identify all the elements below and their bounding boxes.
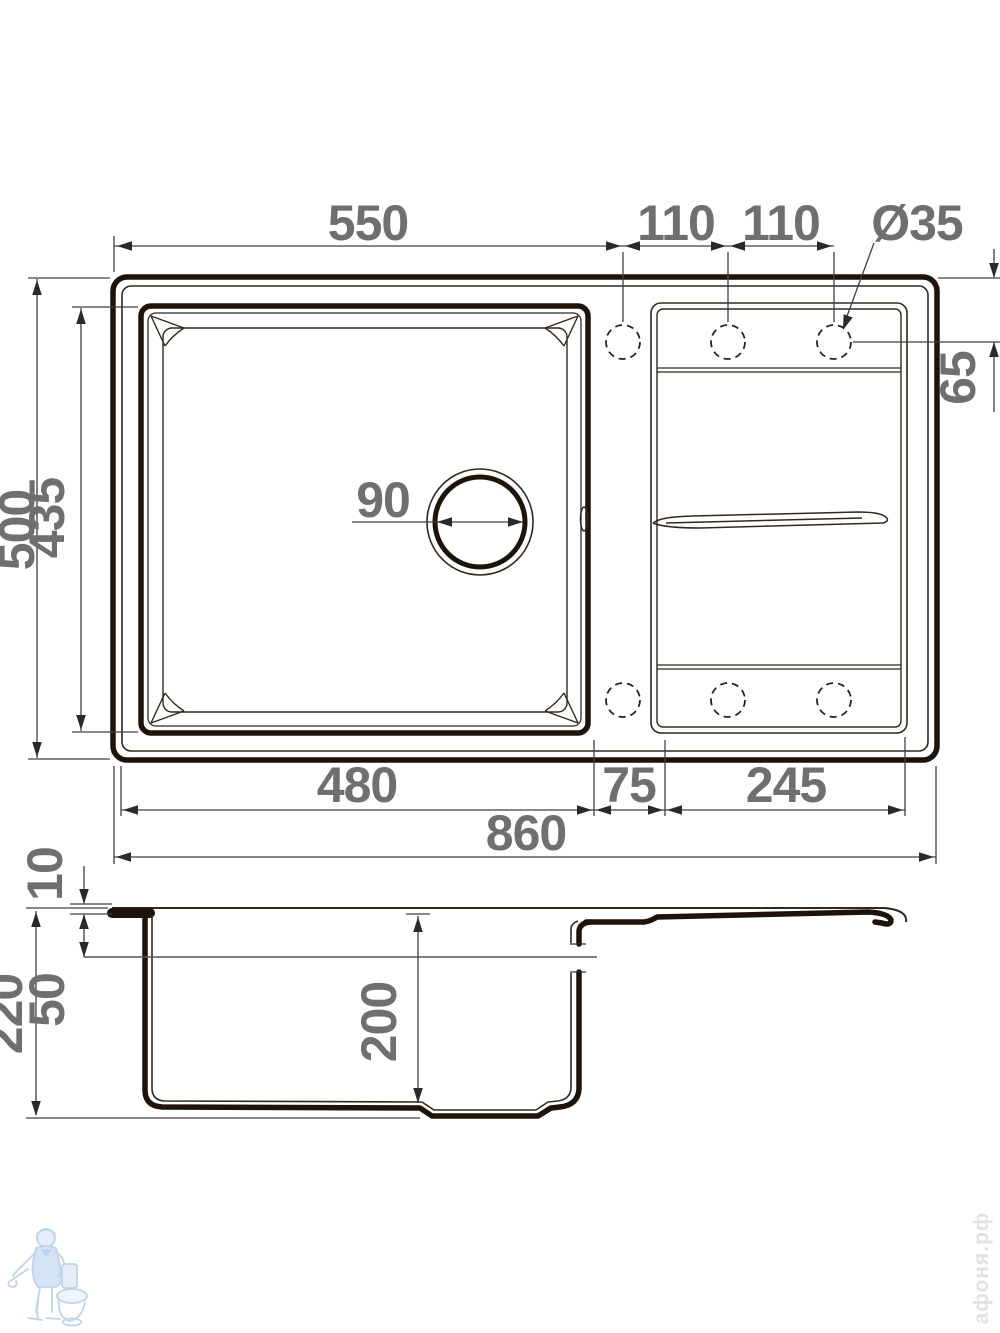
logo-legs [36,1287,52,1318]
dim-hole-diameter: Ø35 [871,195,963,251]
dimension-arrowhead [577,805,592,815]
dimension-arrowhead [919,852,934,862]
faucet-hole [606,683,640,717]
dimension-arrowhead [79,942,89,957]
dimension-arrowhead [888,805,903,815]
dim-bowl-depth: 435 [19,478,75,559]
dimension-arrowhead [413,917,423,932]
faucet-hole [606,325,640,359]
dim-board-width: 245 [746,757,827,813]
faucet-hole [711,325,745,359]
dimension-arrowhead [32,742,42,757]
dimension-arrowhead [730,241,745,251]
dimension-arrowhead [79,914,89,929]
sink-technical-drawing: 550 110 110 Ø35 65 500 435 90 480 75 245… [0,0,1000,1333]
dimension-arrowhead [989,342,999,357]
drain-recess-profile [422,1102,548,1110]
dimension-arrowhead [123,805,138,815]
logo-plunger [9,1269,29,1287]
dim-drain-diameter: 90 [356,472,410,528]
dimension-arrowhead [989,263,999,278]
faucet-hole [711,683,745,717]
dimension-arrowhead [838,314,852,331]
overflow-section-marks [570,944,586,972]
dimension-arrowhead [32,280,42,295]
dimension-arrowhead [117,241,132,251]
dimension-arrowhead [667,805,682,815]
dimension-arrowhead [116,852,131,862]
dimension-arrowhead [508,517,523,527]
drainboard [651,303,907,733]
dimension-arrowhead [413,1088,423,1103]
drainboard-profile [586,912,891,924]
dim-hole-offset: 65 [930,351,986,405]
logo-shoes [28,1318,60,1320]
dimension-arrowhead [76,715,86,730]
top-view: 550 110 110 Ø35 65 500 435 90 480 75 245… [0,195,1000,864]
dimension-arrowhead [606,241,621,251]
dim-overall-height: 220 [0,974,33,1054]
dim-overall-width: 860 [486,805,566,861]
dimension-arrowhead [31,1101,41,1116]
drawing-page: 550 110 110 Ø35 65 500 435 90 480 75 245… [0,0,1000,1333]
dimension-arrowhead [625,241,640,251]
logo-toilet-tank [62,1264,77,1288]
dimension-arrowhead [437,517,452,527]
dimension-arrowhead [76,309,86,324]
faucet-hole [817,325,851,359]
dimension-arrowhead [817,241,832,251]
drain-groove [653,512,887,528]
dimension-arrowhead [711,241,726,251]
dim-top-width: 550 [328,195,408,251]
dim-bowl-inner-depth: 200 [351,982,407,1062]
dim-hole-spacing-a: 110 [637,195,715,251]
drainboard-dividers [657,368,901,669]
dim-hole-spacing-b: 110 [742,195,820,251]
dimension-arrowhead [79,889,89,904]
watermark-logo-plumber [9,1229,88,1326]
faucet-hole [817,683,851,717]
dim-bowl-width: 480 [317,757,397,813]
logo-toilet-seat [57,1289,87,1303]
dimension-arrowhead [31,912,41,927]
dim-rim-height: 10 [17,847,73,901]
dim-mid-width: 75 [602,757,656,813]
side-view: 10 50 220 200 [0,847,906,1118]
watermark-brand-text: афоня.рф [970,1212,993,1325]
